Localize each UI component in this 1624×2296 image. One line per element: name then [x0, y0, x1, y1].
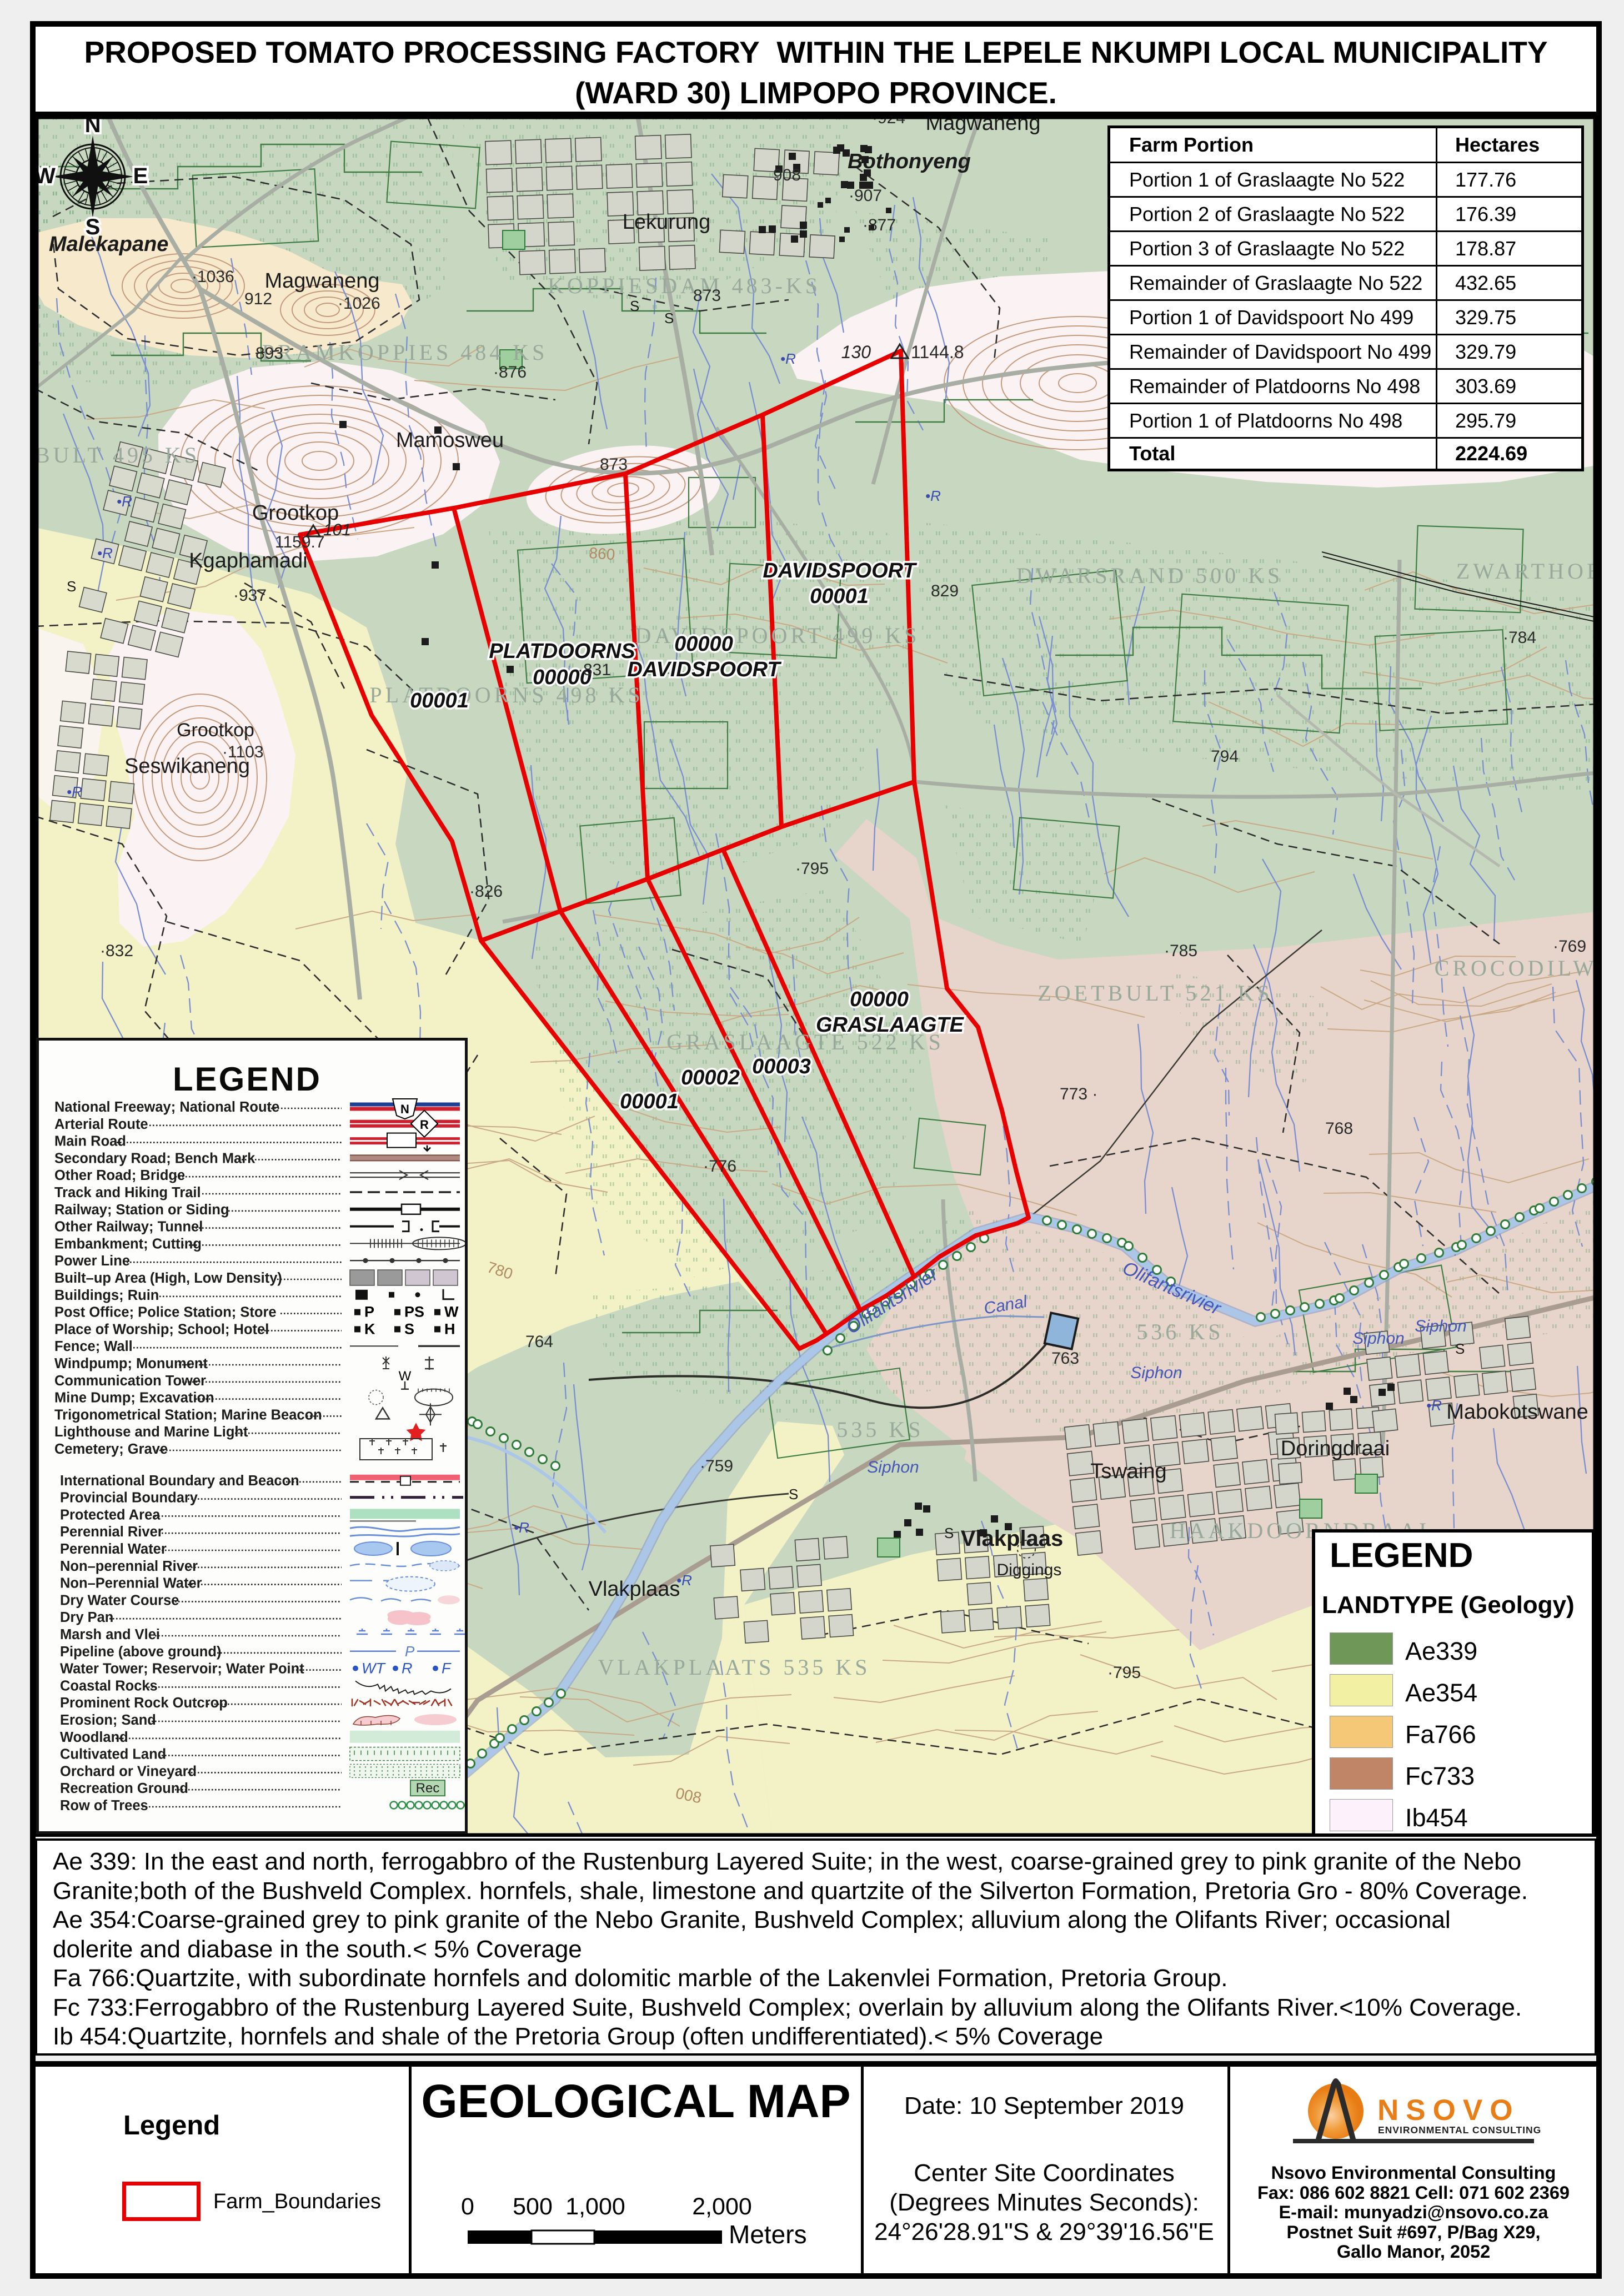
svg-text:Row of Trees: Row of Trees [60, 1798, 148, 1813]
svg-text:R: R [420, 1118, 429, 1132]
svg-text:Dry Pan: Dry Pan [60, 1610, 113, 1625]
svg-text:908: 908 [773, 166, 801, 184]
svg-text:•R: •R [97, 545, 113, 561]
svg-text:535 KS: 535 KS [836, 1417, 924, 1442]
svg-text:S: S [67, 578, 76, 595]
svg-text:Tswaing: Tswaing [1090, 1460, 1166, 1483]
svg-text:CROCODILWAL 5: CROCODILWAL 5 [1435, 956, 1597, 981]
svg-text:Diggings: Diggings [997, 1561, 1062, 1579]
svg-text:·759: ·759 [700, 1457, 733, 1475]
svg-text:F: F [442, 1660, 452, 1677]
svg-text:Perennial Water: Perennial Water [60, 1541, 167, 1557]
svg-text:·784: ·784 [1503, 629, 1536, 647]
svg-text:Coastal Rocks: Coastal Rocks [60, 1678, 158, 1694]
svg-text:·877: ·877 [863, 216, 896, 234]
svg-text:500: 500 [513, 2193, 553, 2220]
svg-text:LEGEND: LEGEND [173, 1061, 322, 1098]
svg-text:00001: 00001 [410, 689, 469, 712]
svg-text:Trigonometrical Station; Marin: Trigonometrical Station; Marine Beacon [54, 1407, 322, 1423]
svg-text:Cemetery; Grave: Cemetery; Grave [54, 1441, 168, 1457]
svg-text:·937: ·937 [233, 586, 267, 605]
svg-text:S: S [664, 310, 674, 326]
svg-text:Communication Tower: Communication Tower [54, 1373, 206, 1389]
svg-text:893: 893 [255, 344, 283, 363]
svg-text:·1036: ·1036 [192, 268, 234, 286]
svg-text:International Boundary and Bea: International Boundary and Beacon [60, 1473, 299, 1489]
svg-text:829: 829 [931, 582, 959, 600]
svg-text:Track and Hiking Trail: Track and Hiking Trail [54, 1185, 201, 1200]
svg-text:00000: 00000 [850, 988, 909, 1011]
svg-text:•R: •R [780, 350, 796, 367]
svg-text:Non–perennial River: Non–perennial River [60, 1559, 198, 1574]
svg-text:ZOETBULT 521 KS: ZOETBULT 521 KS [1037, 981, 1272, 1006]
svg-text:873: 873 [693, 287, 721, 305]
svg-text:Erosion; Sand: Erosion; Sand [60, 1712, 156, 1728]
svg-text:•R: •R [676, 1572, 692, 1589]
svg-text:2,000: 2,000 [692, 2193, 752, 2220]
svg-text:P: P [405, 1643, 415, 1660]
svg-text:Vlakplaas: Vlakplaas [961, 1526, 1064, 1551]
svg-text:·831: ·831 [578, 661, 611, 679]
svg-text:S: S [944, 1525, 954, 1541]
svg-text:Kgaphamadi: Kgaphamadi [189, 549, 307, 572]
svg-text:•R: •R [1426, 1397, 1442, 1414]
svg-text:·795: ·795 [1107, 1664, 1141, 1682]
svg-text:764: 764 [525, 1333, 553, 1351]
svg-text:Other Road; Bridge: Other Road; Bridge [54, 1168, 185, 1183]
svg-text:Windpump; Monument: Windpump; Monument [54, 1356, 208, 1371]
svg-text:Fence; Wall: Fence; Wall [54, 1339, 133, 1354]
svg-text:R: R [402, 1660, 413, 1677]
svg-text:130: 130 [841, 342, 871, 362]
svg-text:Lekurung: Lekurung [623, 210, 710, 234]
svg-text:•R: •R [514, 1519, 529, 1536]
svg-text:Orchard or Vineyard: Orchard or Vineyard [60, 1764, 197, 1779]
svg-text:WT: WT [362, 1660, 386, 1677]
svg-text:KOPPIESDAM 483-KS: KOPPIESDAM 483-KS [548, 273, 821, 298]
svg-text:Prominent Rock Outcrop: Prominent Rock Outcrop [60, 1695, 228, 1711]
svg-text:DWARSRAND 500 KS: DWARSRAND 500 KS [1016, 563, 1284, 588]
svg-text:H: H [444, 1320, 455, 1337]
svg-text:Cultivated Land: Cultivated Land [60, 1747, 166, 1762]
svg-text:Grootkop: Grootkop [177, 720, 254, 741]
svg-text:·769: ·769 [1553, 937, 1586, 956]
svg-text:Provincial Boundary: Provincial Boundary [60, 1490, 198, 1506]
svg-text:Woodland: Woodland [60, 1730, 128, 1745]
svg-text:W: W [399, 1369, 412, 1384]
svg-text:PLATDOORNS: PLATDOORNS [489, 640, 635, 663]
svg-text:Magwaneng: Magwaneng [264, 269, 379, 293]
svg-text:Perennial River: Perennial River [60, 1524, 163, 1540]
svg-text:Railway; Station or Siding: Railway; Station or Siding [54, 1202, 229, 1218]
svg-text:00003: 00003 [752, 1055, 811, 1078]
svg-text:860: 860 [589, 544, 616, 563]
svg-text:•R: •R [67, 783, 82, 800]
svg-text:Pipeline (above ground): Pipeline (above ground) [60, 1644, 221, 1660]
svg-text:Doringdraai: Doringdraai [1281, 1437, 1390, 1460]
svg-text:Water Tower; Reservoir; Water: Water Tower; Reservoir; Water Point [60, 1661, 304, 1677]
svg-text:00000: 00000 [674, 632, 733, 656]
svg-text:912: 912 [244, 290, 272, 308]
svg-text:00001: 00001 [810, 585, 869, 608]
svg-text:E: E [133, 164, 148, 188]
svg-text:Vlakplaas: Vlakplaas [589, 1577, 680, 1601]
svg-text:Siphon: Siphon [1352, 1329, 1404, 1348]
svg-text:GRASLAAGTE: GRASLAAGTE [816, 1013, 965, 1037]
svg-text:Other Railway; Tunnel: Other Railway; Tunnel [54, 1219, 203, 1235]
svg-text:Marsh and Vlei: Marsh and Vlei [60, 1627, 160, 1642]
svg-text:S: S [1455, 1340, 1465, 1357]
svg-text:1,000: 1,000 [565, 2193, 625, 2220]
svg-text:ZWARTHOEK: ZWARTHOEK [1456, 559, 1597, 584]
svg-text:Mamosweu: Mamosweu [396, 429, 504, 452]
svg-text:·826: ·826 [469, 882, 503, 901]
svg-text:Siphon: Siphon [867, 1458, 919, 1476]
svg-text:·776: ·776 [703, 1157, 736, 1175]
svg-text:768: 768 [1325, 1119, 1353, 1138]
svg-text:VLAKPLAATS 535 KS: VLAKPLAATS 535 KS [598, 1655, 871, 1680]
svg-text:NSOVO: NSOVO [1377, 2094, 1520, 2127]
svg-text:Secondary Road; Bench Mark: Secondary Road; Bench Mark [54, 1150, 255, 1166]
svg-text:S: S [86, 215, 101, 239]
svg-text:Mine Dump; Excavation: Mine Dump; Excavation [54, 1390, 214, 1406]
svg-text:P: P [364, 1304, 374, 1320]
svg-text:00001: 00001 [620, 1090, 679, 1113]
svg-text:W: W [444, 1304, 459, 1320]
svg-text:1144.8: 1144.8 [911, 342, 964, 362]
svg-text:·785: ·785 [1164, 942, 1197, 960]
svg-text:Embankment; Cutting: Embankment; Cutting [54, 1236, 202, 1252]
svg-text:Power Line: Power Line [54, 1253, 130, 1269]
svg-text:763: 763 [1051, 1349, 1079, 1368]
svg-text:DAVIDSPOORT: DAVIDSPOORT [763, 559, 917, 582]
svg-text:PRAMKOPPIES 484 KS: PRAMKOPPIES 484 KS [262, 340, 548, 365]
svg-text:00002: 00002 [681, 1066, 740, 1089]
svg-text:Bothonyeng: Bothonyeng [848, 150, 971, 173]
svg-text:Meters: Meters [729, 2220, 807, 2249]
svg-text:Main Road: Main Road [54, 1134, 126, 1149]
svg-text:536 KS: 536 KS [1136, 1319, 1224, 1344]
svg-text:Post Office; Police Station; S: Post Office; Police Station; Store [54, 1305, 277, 1320]
svg-text:Rec: Rec [416, 1781, 440, 1796]
svg-text:DAVIDSPOORT: DAVIDSPOORT [627, 658, 781, 681]
svg-text:0: 0 [461, 2193, 474, 2220]
svg-text:Protected Area: Protected Area [60, 1507, 161, 1523]
svg-text:K: K [364, 1320, 375, 1337]
svg-text:S: S [789, 1486, 798, 1503]
svg-text:S: S [630, 298, 639, 314]
svg-text:N: N [400, 1102, 409, 1116]
svg-text:Buildings; Ruin: Buildings; Ruin [54, 1288, 159, 1303]
svg-text:Siphon: Siphon [1415, 1317, 1466, 1335]
svg-text:Built–up Area (High, Low Densi: Built–up Area (High, Low Density) [54, 1270, 282, 1286]
svg-text:101: 101 [323, 521, 351, 539]
svg-text:·876: ·876 [493, 363, 527, 381]
svg-text:Seswikaneng: Seswikaneng [124, 755, 250, 778]
svg-text:National Freeway; National Rou: National Freeway; National Route [54, 1099, 279, 1115]
svg-text:Place of Worship; School; Hote: Place of Worship; School; Hotel [54, 1322, 269, 1337]
svg-text:S: S [404, 1320, 414, 1337]
svg-text:·1026: ·1026 [338, 294, 380, 313]
svg-text:873: 873 [600, 455, 628, 474]
svg-text:•R: •R [117, 493, 132, 510]
svg-text:BULT 495 KS: BULT 495 KS [35, 443, 200, 468]
svg-text:773 ·: 773 · [1060, 1085, 1097, 1103]
svg-text:·907: ·907 [849, 187, 882, 205]
svg-text:Siphon: Siphon [1130, 1364, 1182, 1382]
svg-text:Malekapane: Malekapane [49, 233, 168, 256]
svg-text:Non–Perennial Water: Non–Perennial Water [60, 1576, 202, 1591]
svg-text:Mabokotswane: Mabokotswane [1446, 1400, 1588, 1424]
svg-text:·795: ·795 [795, 860, 829, 878]
svg-text:•R: •R [925, 488, 941, 504]
svg-text:Dry Water Course: Dry Water Course [60, 1592, 179, 1608]
svg-text:ENVIRONMENTAL CONSULTING: ENVIRONMENTAL CONSULTING [1378, 2124, 1541, 2136]
svg-text:PS: PS [404, 1304, 424, 1320]
svg-text:·832: ·832 [100, 942, 133, 960]
svg-text:Lighthouse and Marine Light: Lighthouse and Marine Light [54, 1424, 248, 1440]
svg-text:Arterial Route: Arterial Route [54, 1117, 148, 1132]
svg-text:794: 794 [1211, 747, 1239, 766]
svg-text:Recreation Ground: Recreation Ground [60, 1781, 188, 1796]
